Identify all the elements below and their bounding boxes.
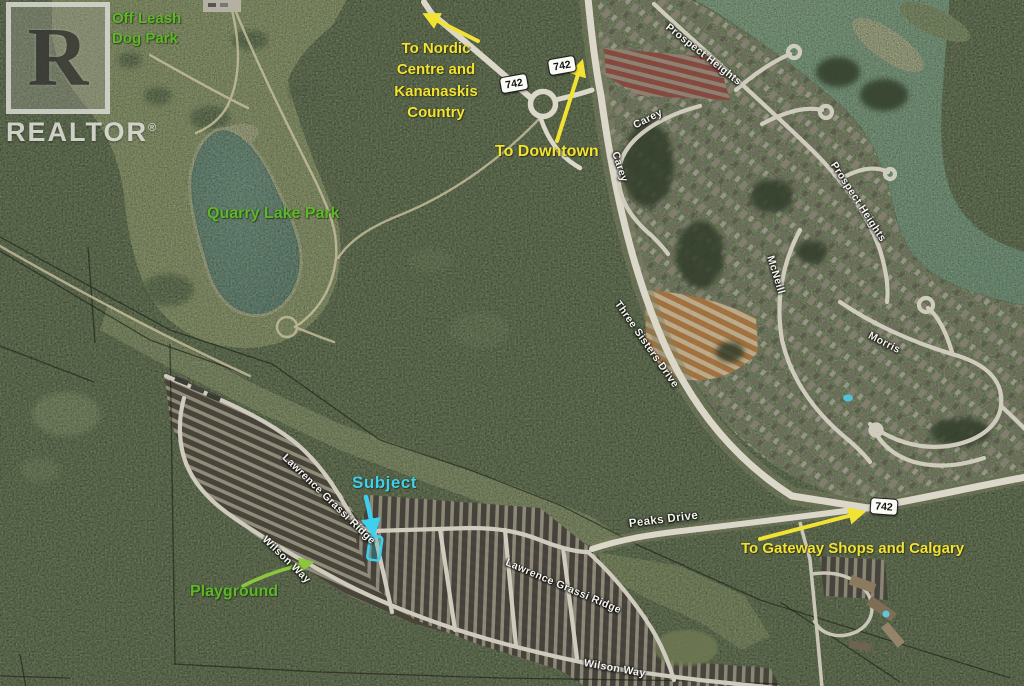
aerial-map: R REALTOR® Off Leash Dog Park To Nordic …: [0, 0, 1024, 686]
realtor-brand-text: REALTOR®: [6, 117, 158, 148]
realtor-logo: R: [6, 2, 110, 114]
realtor-logo-letter: R: [28, 18, 89, 98]
label-to-gateway-shops: To Gateway Shops and Calgary: [741, 540, 964, 557]
label-quarry-lake-park: Quarry Lake Park: [207, 205, 340, 223]
highway-shield-742-south: 742: [869, 497, 898, 516]
label-subject: Subject: [352, 473, 417, 493]
realtor-brand-label: REALTOR: [6, 117, 148, 147]
label-playground: Playground: [190, 583, 278, 601]
label-to-downtown: To Downtown: [495, 143, 599, 161]
label-off-leash-dog-park: Off Leash Dog Park: [112, 9, 181, 48]
swimming-pool: [843, 395, 853, 402]
registered-mark: ®: [148, 122, 158, 134]
label-to-nordic-centre: To Nordic Centre and Kananaskis Country: [368, 38, 504, 123]
